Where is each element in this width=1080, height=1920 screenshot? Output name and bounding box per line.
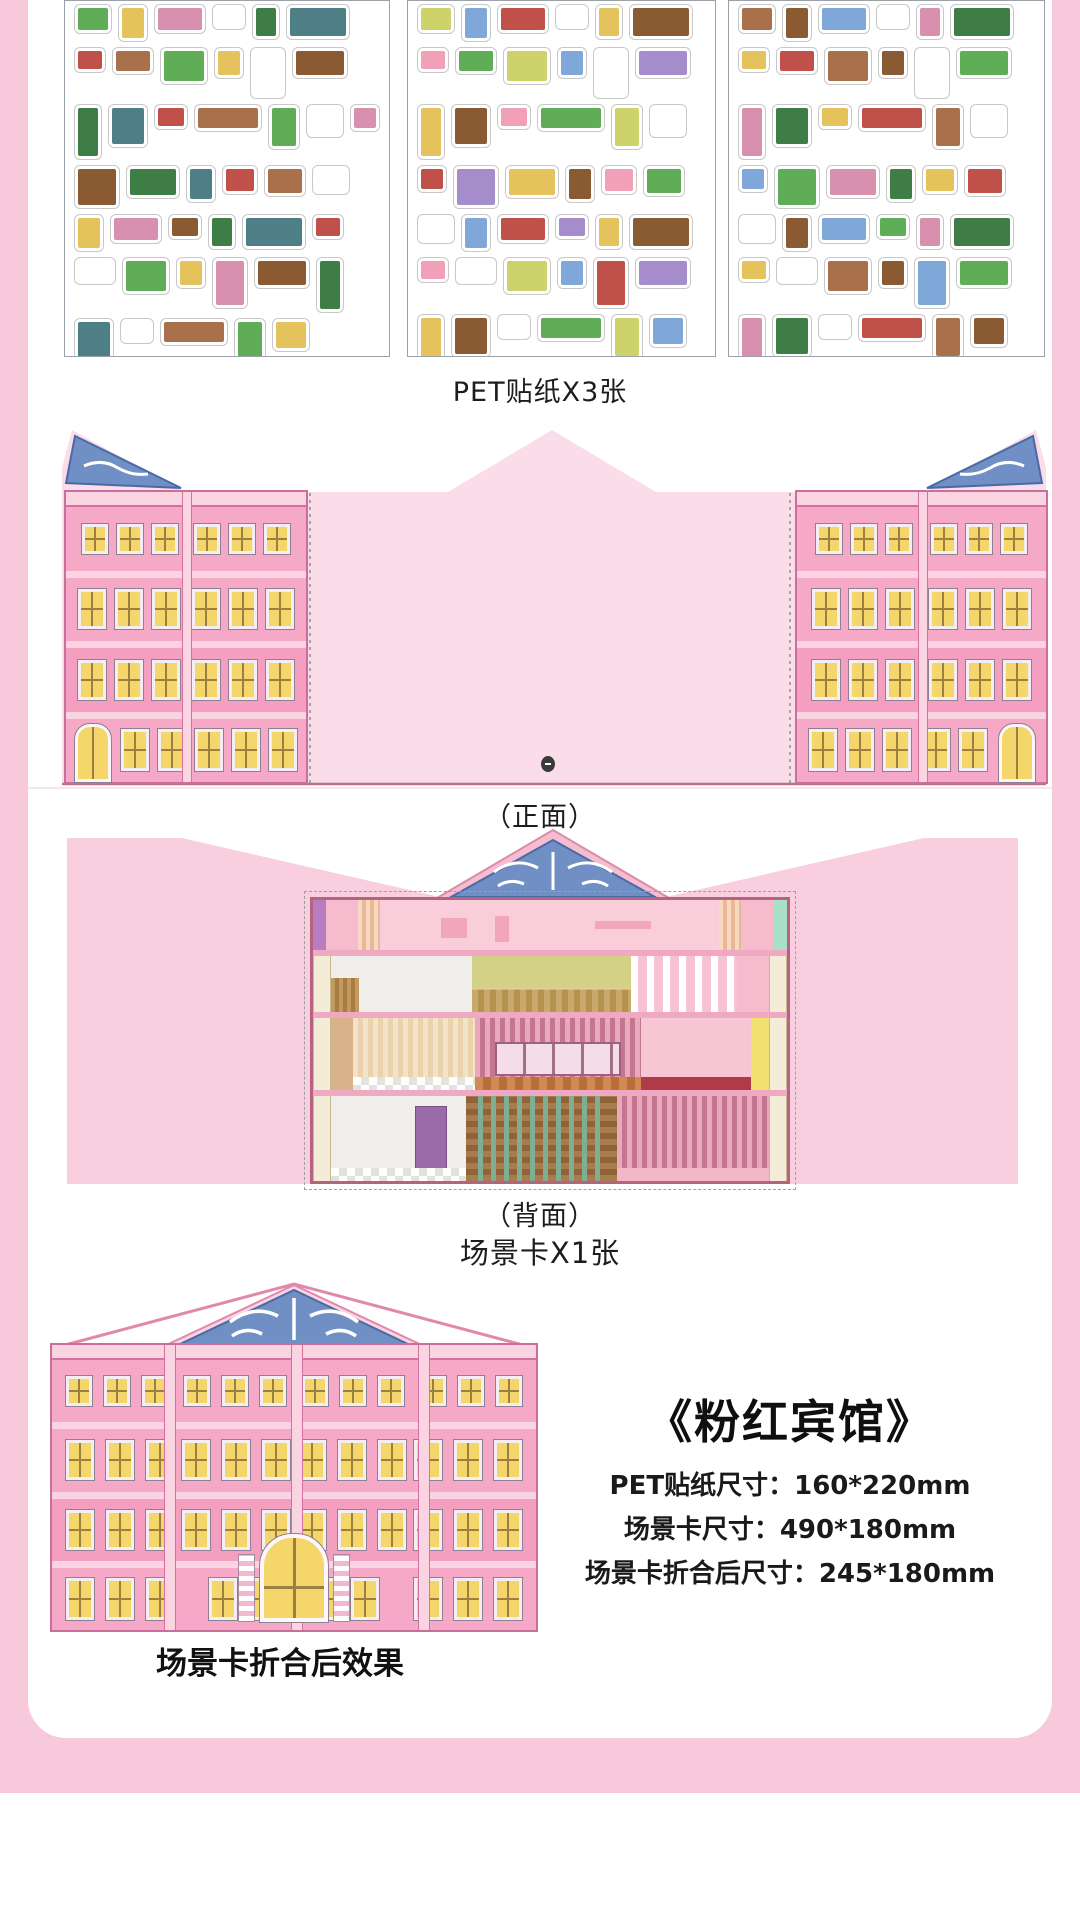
sticker [957, 48, 1011, 78]
sticker [177, 258, 205, 288]
sticker [596, 215, 622, 249]
window [338, 1440, 366, 1480]
lounge-room [617, 1096, 769, 1181]
sticker [558, 258, 586, 288]
sticker [161, 48, 207, 84]
sticker [773, 105, 811, 147]
sticker [418, 5, 454, 33]
product-detail-page: PET贴纸X3张 [0, 0, 1080, 1920]
window [812, 660, 840, 700]
sticker [75, 105, 101, 159]
door-pilaster [238, 1554, 255, 1622]
second-floor [313, 1018, 787, 1096]
sticker [917, 5, 943, 39]
sticker [917, 215, 943, 249]
window [496, 1376, 522, 1406]
sticker [650, 315, 686, 347]
sticker-count-label: PET贴纸X3张 [28, 370, 1052, 409]
sticker [933, 315, 963, 357]
pilaster [164, 1345, 176, 1630]
sticker [127, 166, 179, 198]
sticker [783, 215, 811, 251]
side-column [313, 1096, 331, 1181]
sticker [161, 319, 227, 345]
sticker [777, 258, 817, 284]
window [1003, 660, 1031, 700]
window [929, 660, 957, 700]
sticker [825, 258, 871, 294]
sticker [506, 166, 558, 198]
front-view-label: （正面） [28, 795, 1052, 834]
window [378, 1440, 406, 1480]
window [378, 1510, 406, 1550]
window [262, 1440, 290, 1480]
sticker [75, 319, 113, 357]
window [192, 589, 220, 629]
sticker [594, 48, 628, 98]
folded-scene-card [50, 1343, 538, 1632]
sticker [169, 215, 201, 239]
window [106, 1578, 134, 1620]
wall-mark [495, 916, 509, 942]
sticker [452, 105, 490, 147]
sticker-sheet-2 [407, 0, 716, 357]
sticker [113, 48, 153, 74]
entrance-door [999, 724, 1035, 782]
sticker [75, 5, 111, 33]
window [78, 660, 106, 700]
window [66, 1440, 94, 1480]
sticker [739, 215, 775, 243]
sticker [75, 166, 119, 208]
balcony-room [631, 956, 737, 1012]
sticker [879, 258, 907, 288]
sticker [877, 5, 909, 29]
window [458, 1376, 484, 1406]
sticker [538, 315, 604, 341]
sticker [859, 105, 925, 131]
front-facade-right [795, 490, 1048, 784]
window [454, 1510, 482, 1550]
sticker [418, 215, 454, 243]
window [816, 524, 842, 554]
attic-floor [313, 900, 787, 956]
sticker [109, 105, 147, 147]
sticker [556, 215, 588, 239]
sticker [951, 5, 1013, 39]
sticker [819, 5, 869, 33]
wood-wall [331, 978, 359, 1012]
sticker [293, 48, 347, 78]
window [886, 660, 914, 700]
sticker [265, 166, 305, 196]
tile-floor [353, 1077, 475, 1090]
sticker [351, 105, 379, 131]
window [269, 729, 297, 771]
sticker [915, 258, 949, 308]
sticker [887, 166, 915, 202]
sticker [498, 315, 530, 339]
window [209, 1578, 237, 1620]
window [812, 589, 840, 629]
sticker [951, 215, 1013, 249]
scene-card-count-label: 场景卡X1张 [28, 1230, 1052, 1272]
sticker [596, 5, 622, 39]
sticker [75, 215, 103, 251]
sticker [456, 258, 496, 284]
main-entrance [238, 1534, 350, 1622]
sticker [121, 319, 153, 343]
window [931, 524, 957, 554]
sticker [971, 315, 1007, 347]
sticker [75, 48, 105, 72]
hall-room [475, 1018, 640, 1090]
panel-fold-seam [918, 492, 928, 782]
side-column [313, 1018, 331, 1090]
wall-mark [441, 918, 467, 938]
window [494, 1510, 522, 1550]
window [849, 589, 877, 629]
sticker [251, 48, 285, 98]
pink-room [641, 1018, 751, 1090]
sticker [739, 166, 767, 192]
staircase [466, 1096, 618, 1181]
sticker [418, 258, 448, 282]
sticker [235, 319, 265, 357]
tile-floor [331, 1168, 466, 1181]
sticker [504, 258, 550, 294]
window [929, 589, 957, 629]
back-view-label: （背面） [28, 1194, 1052, 1233]
window [886, 524, 912, 554]
sticker [418, 105, 444, 159]
sticker [538, 105, 604, 131]
window [266, 589, 294, 629]
window [966, 589, 994, 629]
sticker [556, 5, 588, 29]
sticker [498, 105, 530, 129]
sticker [636, 48, 690, 78]
sticker [187, 166, 215, 202]
window [152, 660, 180, 700]
sticker [313, 166, 349, 194]
window [351, 1578, 379, 1620]
window [886, 589, 914, 629]
living-room [472, 956, 631, 1012]
brick-floor [475, 1077, 640, 1090]
window [192, 660, 220, 700]
sticker [255, 258, 309, 288]
window [959, 729, 987, 771]
wall-mark [595, 921, 651, 929]
sticker [739, 258, 769, 282]
window [1001, 524, 1027, 554]
window [809, 729, 837, 771]
window [106, 1510, 134, 1550]
sticker [119, 5, 147, 41]
sticker [971, 105, 1007, 137]
sticker [273, 319, 309, 351]
sticker [859, 315, 925, 341]
sticker [644, 166, 684, 196]
bedroom [331, 956, 472, 1012]
ground-floor [313, 1096, 787, 1181]
sticker [195, 105, 261, 131]
sticker [773, 315, 811, 357]
folded-effect-label: 场景卡折合后效果 [90, 1638, 470, 1683]
front-facade-left [64, 490, 308, 784]
sticker [75, 258, 115, 284]
sticker [498, 5, 548, 33]
window [66, 1578, 94, 1620]
sticker [317, 258, 343, 312]
window [966, 660, 994, 700]
sticker [933, 105, 963, 149]
wall-panel [751, 1018, 769, 1090]
wardrobe [331, 1018, 353, 1090]
sticker [879, 48, 907, 78]
window [846, 729, 874, 771]
sticker [739, 48, 769, 72]
lobby-room [331, 1096, 466, 1181]
window [104, 1376, 130, 1406]
sticker [209, 215, 235, 249]
window [966, 524, 992, 554]
side-column [769, 956, 787, 1012]
pink-floor [617, 1168, 769, 1181]
sticker [612, 105, 642, 149]
window [152, 589, 180, 629]
window [302, 1376, 328, 1406]
sticker [456, 48, 496, 74]
window [851, 524, 877, 554]
window [266, 660, 294, 700]
window [152, 524, 178, 554]
sticker [594, 258, 628, 308]
wall-panel [326, 900, 358, 950]
sticker [923, 166, 957, 194]
window [264, 524, 290, 554]
window [121, 729, 149, 771]
sticker [739, 105, 765, 159]
carpet-floor [641, 1077, 751, 1090]
window [222, 1440, 250, 1480]
window [454, 1440, 482, 1480]
sticker [418, 315, 444, 357]
attic-room [380, 900, 719, 950]
window [340, 1376, 366, 1406]
sticker [775, 166, 819, 208]
side-column [313, 956, 331, 1012]
sticker [307, 105, 343, 137]
sticker [650, 105, 686, 137]
sticker [287, 5, 349, 39]
sticker [783, 5, 811, 41]
sticker [155, 5, 205, 33]
sticker [418, 48, 448, 72]
sticker [269, 105, 299, 149]
attic-right-strip [773, 900, 787, 950]
window [1003, 589, 1031, 629]
sticker [630, 5, 692, 39]
window [454, 1578, 482, 1620]
sticker [462, 5, 490, 41]
sticker [223, 166, 257, 194]
sticker [827, 166, 879, 198]
sticker [111, 215, 161, 243]
sticker [636, 258, 690, 288]
interior-cutaway [310, 897, 790, 1184]
window [849, 660, 877, 700]
guest-room [353, 1018, 475, 1090]
sticker [253, 5, 279, 39]
window [229, 524, 255, 554]
sticker [877, 215, 909, 239]
window [378, 1376, 404, 1406]
sticker [915, 48, 949, 98]
sticker [123, 258, 169, 294]
window [494, 1578, 522, 1620]
sticker [454, 166, 498, 208]
sticker [558, 48, 586, 78]
window [883, 729, 911, 771]
sticker [739, 315, 765, 357]
sticker [213, 258, 247, 308]
window [184, 1376, 210, 1406]
entrance-door [75, 724, 111, 782]
wall-panel [737, 956, 769, 1012]
window [182, 1440, 210, 1480]
product-specs: PET贴纸尺寸：160*220mm 场景卡尺寸：490*180mm 场景卡折合后… [545, 1464, 1035, 1596]
product-title: 《粉红宾馆》 [555, 1386, 1025, 1452]
spec-folded-size: 场景卡折合后尺寸：245*180mm [545, 1552, 1035, 1596]
interior-windows [495, 1042, 621, 1076]
attic-left-strip [313, 900, 326, 950]
perspective-wall [358, 900, 380, 950]
sticker [213, 5, 245, 29]
perspective-wall [719, 900, 741, 950]
sticker [313, 215, 343, 239]
window [66, 1510, 94, 1550]
sticker-sheet-3 [728, 0, 1045, 357]
sticker [777, 48, 817, 74]
sticker [819, 215, 869, 243]
window [115, 589, 143, 629]
sticker [825, 48, 871, 84]
side-column [769, 1096, 787, 1181]
arched-door [260, 1534, 328, 1622]
spec-sticker-size: PET贴纸尺寸：160*220mm [545, 1464, 1035, 1508]
sticker [819, 315, 851, 339]
window [66, 1376, 92, 1406]
sticker [215, 48, 243, 78]
side-column [769, 1018, 787, 1090]
window [82, 524, 108, 554]
window [229, 660, 257, 700]
window [117, 524, 143, 554]
sticker [957, 258, 1011, 288]
sticker [630, 215, 692, 249]
window [260, 1376, 286, 1406]
sticker [418, 166, 446, 192]
pilaster [418, 1345, 430, 1630]
sticker [965, 166, 1005, 196]
panel-fold-seam [182, 492, 192, 782]
wall-panel [741, 900, 773, 950]
stair-railing [478, 1096, 605, 1181]
sticker [566, 166, 594, 202]
section-seam-line [28, 787, 1052, 789]
window [182, 1510, 210, 1550]
sticker [243, 215, 305, 249]
sticker [462, 215, 490, 251]
door-pilaster [333, 1554, 350, 1622]
sticker [498, 215, 548, 243]
window [195, 729, 223, 771]
sticker [612, 315, 642, 357]
window [78, 589, 106, 629]
sticker-sheet-1 [64, 0, 390, 357]
window [229, 589, 257, 629]
window [194, 524, 220, 554]
sticker [452, 315, 490, 357]
window [222, 1376, 248, 1406]
spec-scene-card-size: 场景卡尺寸：490*180mm [545, 1508, 1035, 1552]
window [106, 1440, 134, 1480]
sticker [819, 105, 851, 129]
window [494, 1440, 522, 1480]
sticker [602, 166, 636, 194]
sticker [739, 5, 775, 33]
window [115, 660, 143, 700]
sticker [155, 105, 187, 129]
window [232, 729, 260, 771]
sticker [504, 48, 550, 84]
third-floor [313, 956, 787, 1018]
